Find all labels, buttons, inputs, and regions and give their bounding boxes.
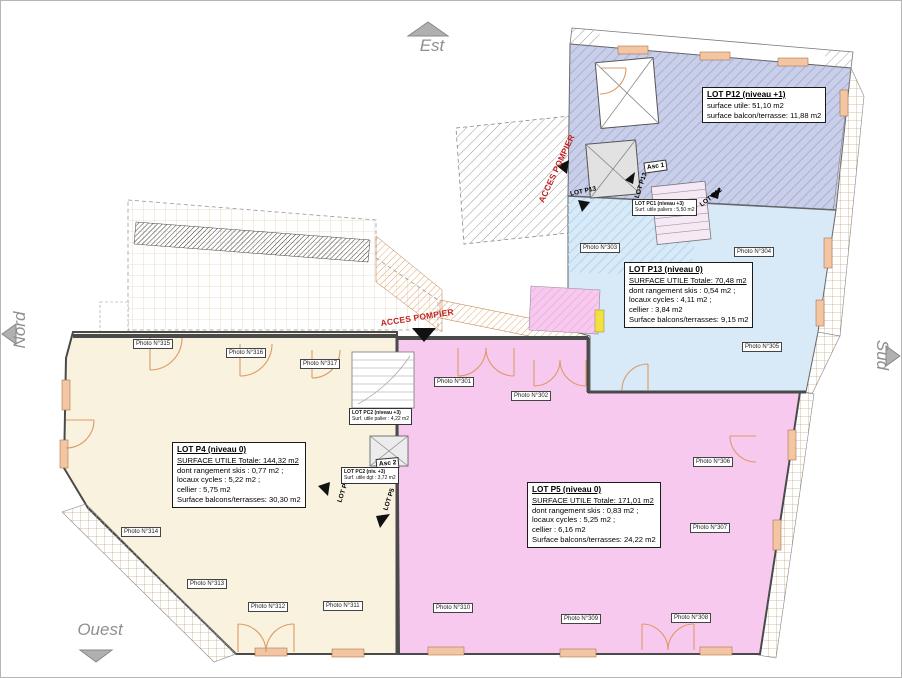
lot-p4-line: Surface balcons/terrasses: 30,30 m2: [177, 495, 301, 505]
photo-label: Photo N°309: [561, 614, 601, 624]
lot-p4-line: locaux cycles : 5,22 m2 ;: [177, 475, 301, 485]
lot-pc1-line: Surf. utile paliers : 5,50 m2: [635, 207, 694, 213]
photo-label: Photo N°305: [742, 342, 782, 352]
lot-p5-info-box: LOT P5 (niveau 0) SURFACE UTILE Totale: …: [527, 482, 661, 548]
lot-pc2b-line: Surf. utile dgt : 3,72 m2: [344, 475, 396, 481]
lot-p5-line: locaux cycles : 5,25 m2 ;: [532, 515, 656, 525]
lot-p13-line: locaux cycles : 4,11 m2 ;: [629, 295, 748, 305]
photo-label: Photo N°306: [693, 457, 733, 467]
lot-p13-line: cellier : 3,84 m2: [629, 305, 748, 315]
photo-label: Photo N°313: [187, 579, 227, 589]
photo-label: Photo N°307: [690, 523, 730, 533]
lot-p12-line: surface utile: 51,10 m2: [707, 101, 821, 111]
lot-p4-total: SURFACE UTILE Totale: 144,32 m2: [177, 456, 301, 466]
lot-p12-info-box: LOT P12 (niveau +1) surface utile: 51,10…: [702, 87, 826, 123]
compass-north-label: Nord: [10, 308, 30, 352]
lot-p13-line: dont rangement skis : 0,54 m2 ;: [629, 286, 748, 296]
lot-p4-line: cellier : 5,75 m2: [177, 485, 301, 495]
photo-label: Photo N°308: [671, 613, 711, 623]
lot-pc2b-info-box: LOT PC2 (niv. +3) Surf. utile dgt : 3,72…: [341, 467, 399, 484]
compass-south-label: Sud: [872, 335, 892, 375]
floor-plan-page: Est Ouest Nord Sud ACCES POMPIER ACCES P…: [0, 0, 902, 678]
photo-label: Photo N°302: [511, 391, 551, 401]
photo-label: Photo N°316: [226, 348, 266, 358]
lot-p4-title: LOT P4 (niveau 0): [177, 445, 301, 456]
lot-p5-line: cellier : 6,16 m2: [532, 525, 656, 535]
lot-p5-title: LOT P5 (niveau 0): [532, 485, 656, 496]
pink-terrace-sliver: [529, 286, 600, 334]
lot-p13-title: LOT P13 (niveau 0): [629, 265, 748, 276]
lot-p4-info-box: LOT P4 (niveau 0) SURFACE UTILE Totale: …: [172, 442, 306, 508]
lot-p12-title: LOT P12 (niveau +1): [707, 90, 821, 101]
lot-pc1-info-box: LOT PC1 (niveau +3) Surf. utile paliers …: [632, 199, 697, 216]
photo-label: Photo N°312: [248, 602, 288, 612]
photo-label: Photo N°315: [133, 339, 173, 349]
lot-pc2a-info-box: LOT PC2 (niveau +3) Surf. utile palier :…: [349, 408, 412, 425]
photo-label: Photo N°310: [433, 603, 473, 613]
lot-pc2a-line: Surf. utile palier : 4,22 m2: [352, 416, 409, 422]
photo-label: Photo N°303: [580, 243, 620, 253]
photo-label: Photo N°311: [323, 601, 363, 611]
lot-p13-total: SURFACE UTILE Totale: 70,48 m2: [629, 276, 748, 286]
lot-p4-line: dont rangement skis : 0,77 m2 ;: [177, 466, 301, 476]
photo-label: Photo N°301: [434, 377, 474, 387]
lot-p13-line: Surface balcons/terrasses: 9,15 m2: [629, 315, 748, 325]
photo-label: Photo N°317: [300, 359, 340, 369]
photo-label: Photo N°314: [121, 527, 161, 537]
lot-p5-line: dont rangement skis : 0,83 m2 ;: [532, 506, 656, 516]
lot-p5-line: Surface balcons/terrasses: 24,22 m2: [532, 535, 656, 545]
lot-p13-info-box: LOT P13 (niveau 0) SURFACE UTILE Totale:…: [624, 262, 753, 328]
lot-p12-line: surface balcon/terrasse: 11,88 m2: [707, 111, 821, 121]
photo-label: Photo N°304: [734, 247, 774, 257]
lot-p5-total: SURFACE UTILE Totale: 171,01 m2: [532, 496, 656, 506]
compass-east-label: Est: [402, 36, 462, 56]
compass-west-label: Ouest: [60, 620, 140, 640]
